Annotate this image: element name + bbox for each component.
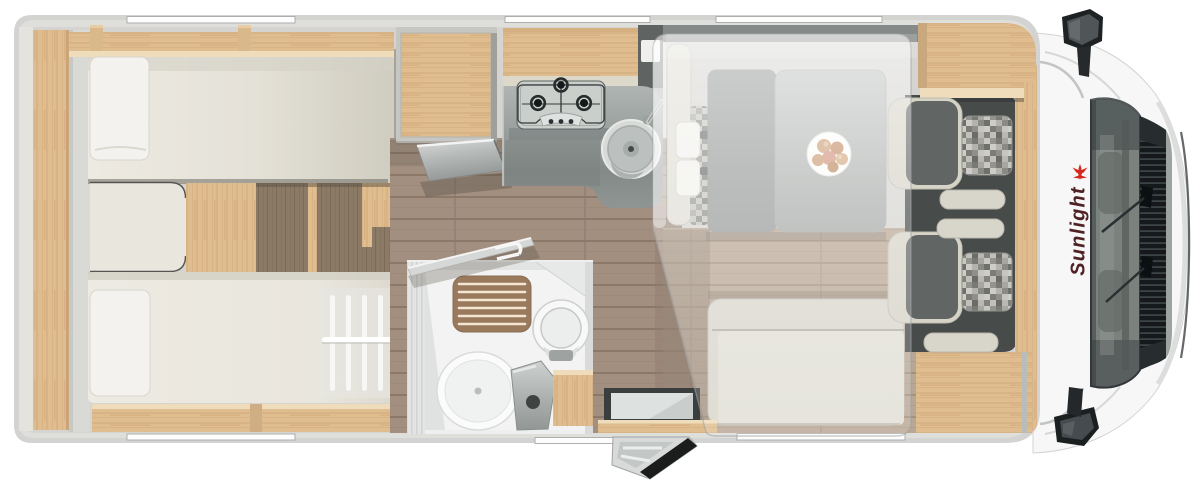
svg-text:Sunlight: Sunlight <box>1068 186 1090 276</box>
